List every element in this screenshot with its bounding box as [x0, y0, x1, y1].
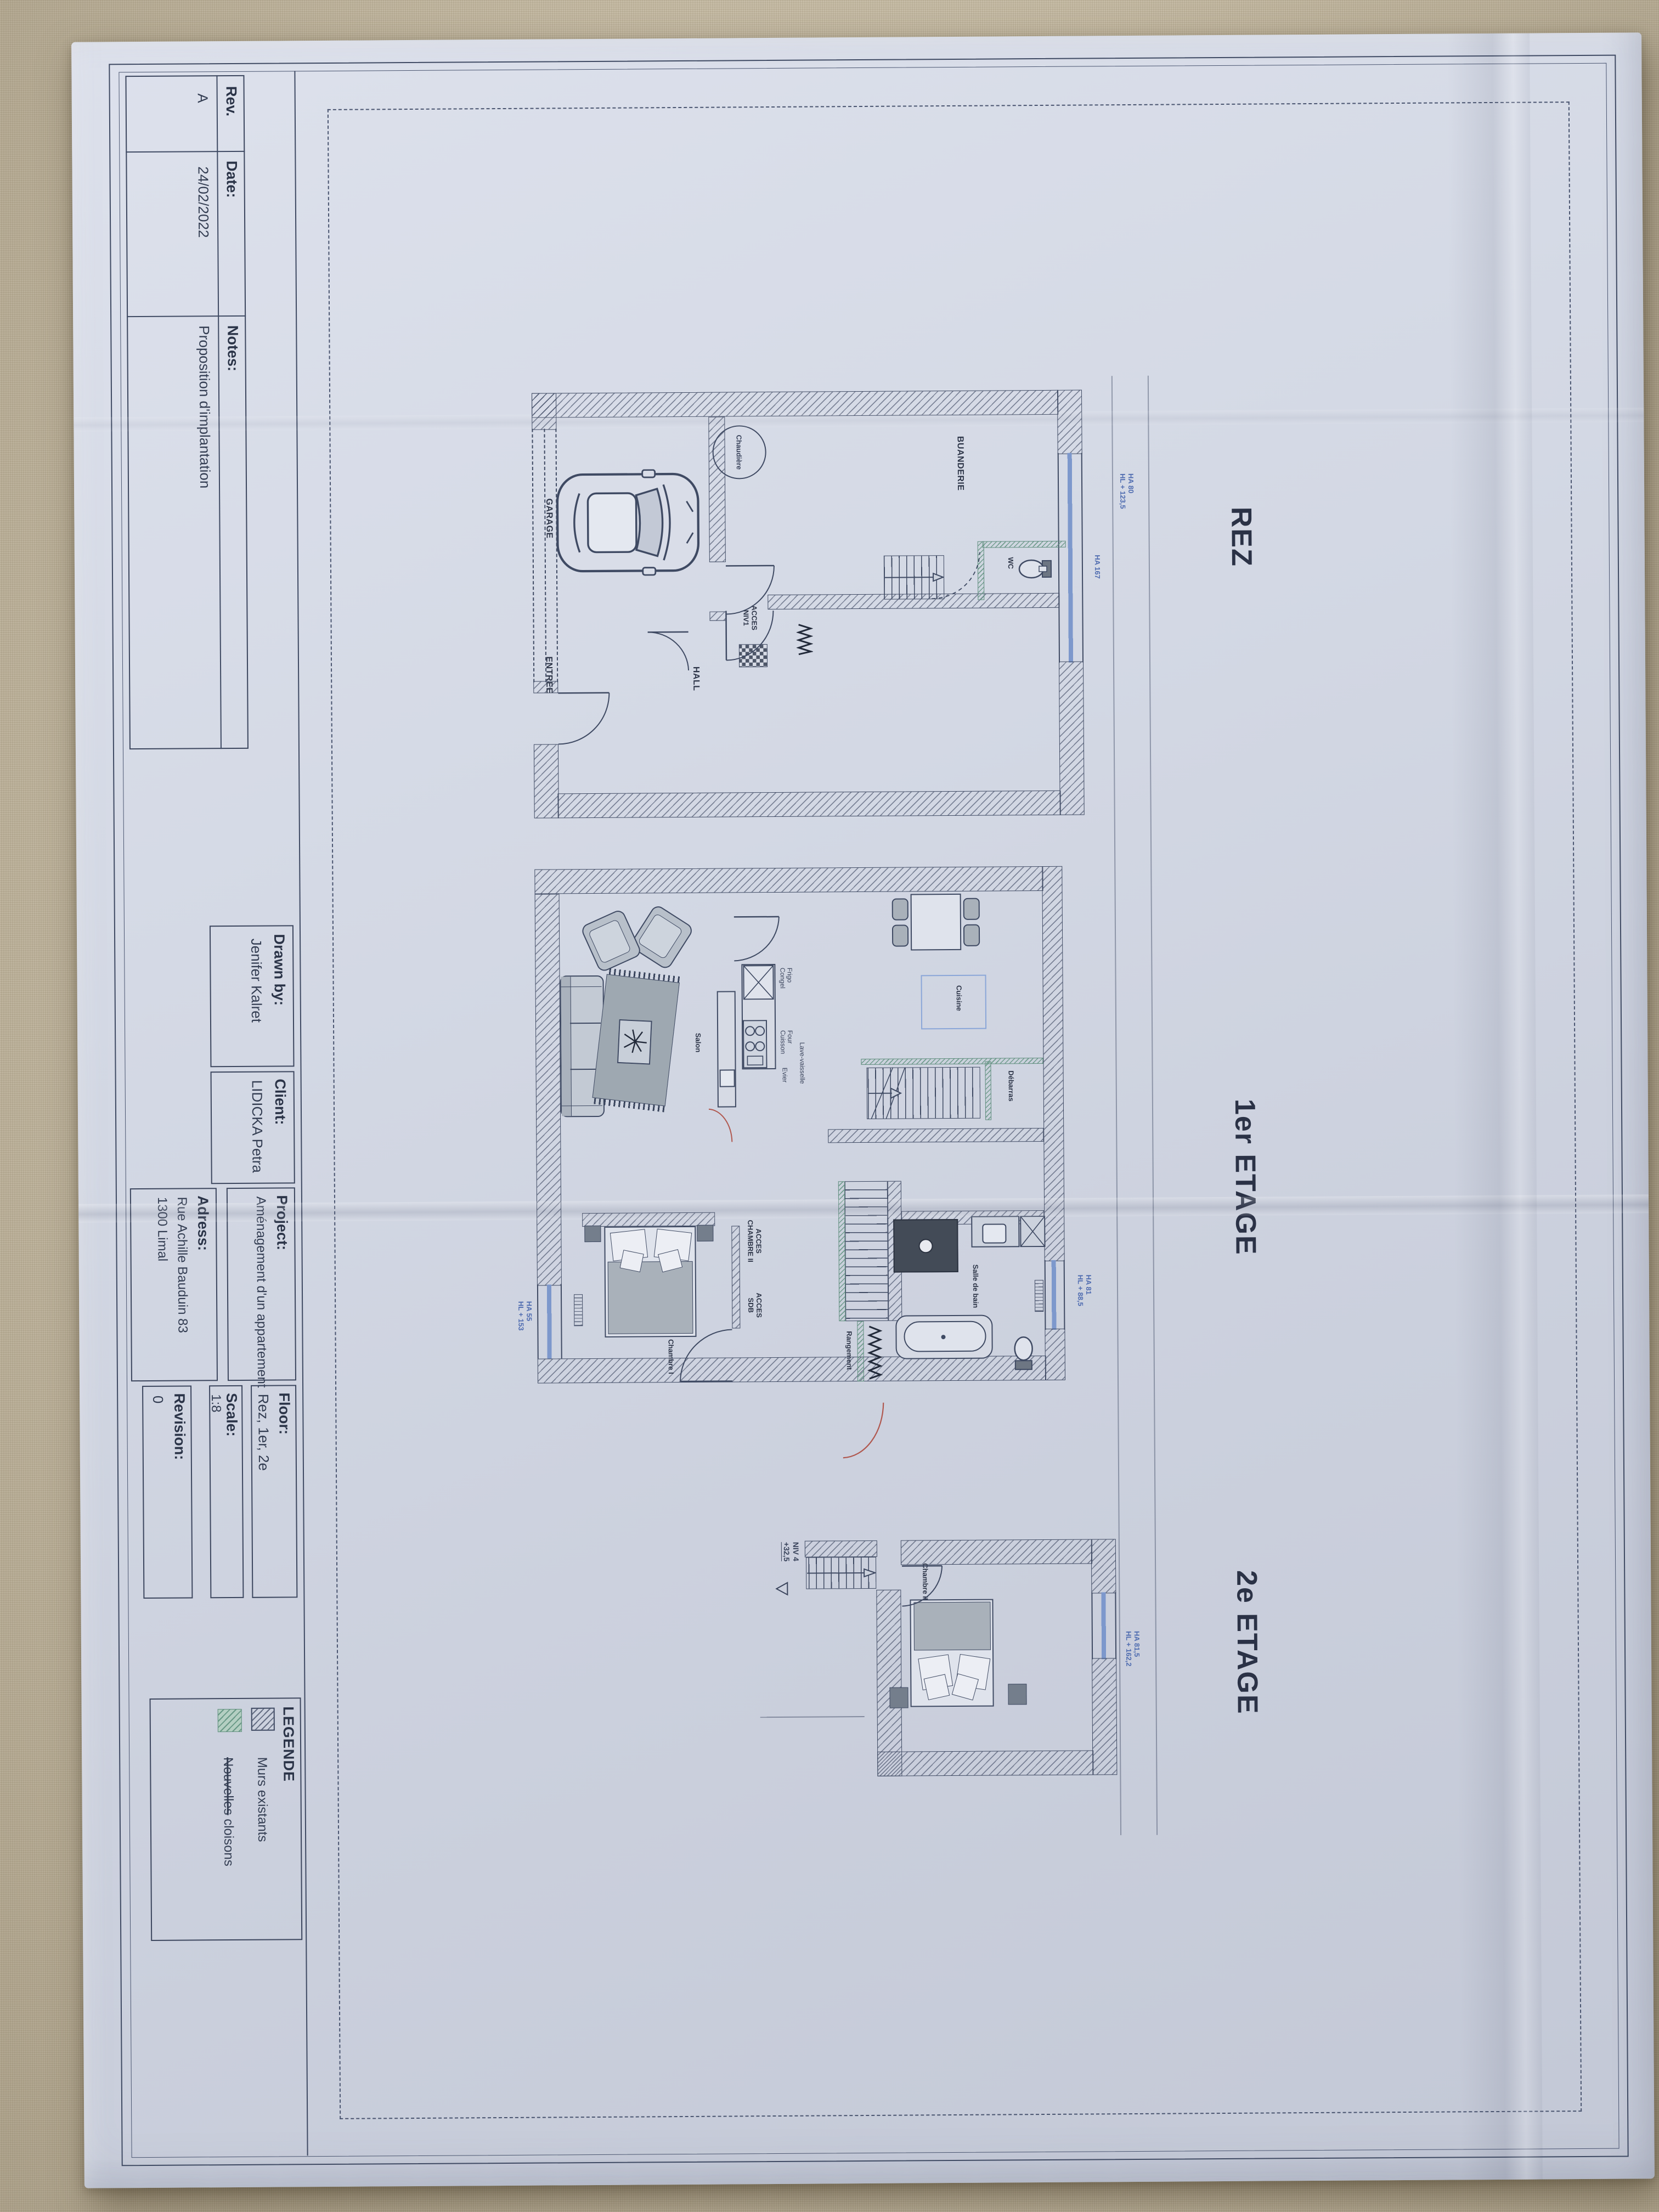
sofa-back [561, 977, 572, 1116]
blueprint-sheet: Rev. A Date: 24/02/2022 Notes: Propositi… [71, 32, 1655, 2188]
bed-blanket [913, 1602, 991, 1651]
window [537, 1284, 562, 1358]
wc-door-arc [930, 551, 981, 600]
kitchen-counter [717, 991, 736, 1107]
wall [534, 744, 559, 818]
floor-title-1er: 1er ETAGE [1228, 1099, 1262, 1256]
room-label-sdb: Salle de bain [972, 1265, 980, 1308]
dining-chair [892, 898, 909, 920]
scale-value: 1:8 [208, 1394, 223, 1413]
label-acces-niv1: ACCESNIV1 [742, 597, 758, 638]
coat-hooks-icon [867, 1325, 883, 1380]
wall [1092, 1658, 1117, 1775]
wall [532, 390, 1058, 418]
label-acces-chambre2: ACCESCHAMBRE II [746, 1214, 763, 1268]
room-label-wc: WC [1007, 549, 1015, 577]
stairs-arrow [806, 1567, 876, 1579]
garage-door-panel-line [544, 429, 546, 682]
rev-label: Rev. [223, 86, 240, 116]
wall [557, 791, 1060, 819]
armchair-seat [637, 913, 683, 960]
label-acces-sdb: ACCESSDB [747, 1286, 763, 1324]
legend-label-existing-walls: Murs existants [254, 1757, 270, 1842]
wall [1045, 1329, 1065, 1380]
sofa-armrest [562, 1105, 602, 1115]
room-label-garage: GARAGE [544, 498, 554, 538]
partition [838, 1181, 846, 1321]
wall [901, 1539, 1092, 1565]
drawing-content: Rev. A Date: 24/02/2022 Notes: Propositi… [71, 32, 1654, 2187]
radiator [574, 1294, 583, 1326]
client-label: Client: [272, 1079, 289, 1125]
label-four: FourCuisson [779, 1030, 793, 1054]
plan-2e: Chambre II [876, 1539, 1118, 1776]
floor-title-2e: 2e ETAGE [1230, 1570, 1264, 1715]
wc-partition [983, 541, 1066, 548]
car-icon [554, 469, 702, 577]
rez-ha167-annotation: HA 167 [1093, 555, 1102, 579]
stair-wall [805, 1541, 877, 1558]
legend-struck-word: Nouvelles [221, 1757, 236, 1815]
bed-blanket [608, 1261, 693, 1334]
shower-head [918, 1239, 933, 1253]
toilet-icon [1017, 557, 1052, 580]
notes-label: Notes: [224, 325, 241, 371]
toilet-icon [1012, 1335, 1035, 1370]
sdb-window-annotation: HA 81HL + 88,5 [1076, 1274, 1093, 1306]
armchair [629, 904, 695, 971]
adress-label: Adress: [194, 1195, 212, 1251]
door-arc [901, 1565, 943, 1607]
rug-fringe [607, 968, 680, 983]
stairs-to-2e [845, 1181, 889, 1321]
rez-window-annotation: HA 80HL + 123,5 [1119, 473, 1135, 509]
cushion [924, 1674, 950, 1700]
shower [893, 1219, 958, 1273]
wall [1057, 390, 1082, 454]
label-frigo: FrigoCongel [778, 968, 793, 989]
rev-value: A [194, 93, 211, 103]
stairs-winders [867, 1068, 906, 1119]
sofa-armrest [561, 978, 602, 987]
partition [857, 1321, 864, 1381]
chambre1-window-annotation: HA 55HL + 153 [517, 1301, 533, 1331]
label-evier: Evier [781, 1068, 788, 1082]
scale-label: Scale: [223, 1393, 240, 1437]
bathtub-drain [941, 1335, 946, 1339]
dining-table [911, 894, 962, 951]
room-label-rangement: Rangement [845, 1331, 853, 1370]
project-label: Project: [273, 1195, 291, 1250]
window [1045, 1260, 1065, 1330]
legend-word-cloisons: cloisons [221, 1815, 236, 1866]
drawn-by-label: Drawn by: [270, 934, 288, 1006]
legend-label-new-partitions: Nouvelles cloisons [220, 1757, 236, 1866]
legend-swatch-new-partitions [218, 1709, 242, 1732]
window [1091, 1592, 1116, 1659]
entry-door-arc [557, 692, 611, 746]
nightstand [1008, 1684, 1026, 1705]
basin [982, 1223, 1006, 1243]
floor-label: Floor: [275, 1392, 292, 1435]
date-value: 24/02/2022 [194, 166, 212, 238]
bathtub [895, 1315, 992, 1359]
door-arc [733, 916, 781, 962]
cooktop [743, 1020, 768, 1068]
interior-wall [582, 1212, 715, 1227]
revision-arc-red [708, 1108, 733, 1143]
coat-hooks-icon [797, 624, 813, 656]
legend-swatch-existing-walls [251, 1708, 275, 1731]
photo-of-floor-plan: { "title_block": { "rev_label": "Rev.", … [0, 0, 1659, 2212]
wall [534, 866, 1043, 894]
bed-chambre1 [604, 1226, 696, 1338]
armchair-seat [588, 919, 631, 964]
dining-chair [892, 924, 909, 946]
partition [861, 1058, 1043, 1065]
cuisine-zone-outline [921, 975, 986, 1030]
adress-value-line1: Rue Achille Bauduin 83 [174, 1197, 190, 1333]
rug [592, 974, 680, 1107]
partition [985, 1062, 991, 1120]
wall [876, 1590, 902, 1776]
revision-arc-red [842, 1402, 885, 1459]
level-value: +32,5 [781, 1542, 791, 1562]
label-lave-vaisselle: Lave-vaisselle [798, 1042, 805, 1084]
plan-rez: WC Chaudière [532, 390, 1085, 819]
floor-title-rez: REZ [1224, 507, 1258, 567]
wall [1059, 662, 1085, 815]
interior-wall [731, 1226, 740, 1328]
door-jamb [697, 1225, 713, 1242]
wall [1042, 866, 1064, 1261]
room-label-debarras: Débarras [1007, 1070, 1015, 1101]
fridge-freezer [743, 965, 774, 1000]
adress-value-line2: 1300 Limal [154, 1197, 170, 1262]
wall [532, 393, 556, 430]
sink [720, 1069, 735, 1087]
plant-icon [621, 1028, 649, 1056]
chambre2-window-annotation: HA 81,5HL + 162,2 [1125, 1631, 1141, 1667]
revision-value: 0 [149, 1396, 166, 1404]
room-label-entree: ENTREE [544, 656, 554, 693]
level-niv: NIV 4 [791, 1542, 800, 1562]
notes-value: Proposition d'implantation [195, 325, 213, 488]
armchair [580, 909, 642, 973]
room-label-buanderie: BUANDERIE [955, 436, 965, 491]
vanity-sink [971, 1216, 1019, 1248]
legend-title: LEGENDE [280, 1706, 297, 1782]
revision-label: Revision: [171, 1393, 188, 1460]
door-jamb [584, 1226, 601, 1242]
chaudiere-circle: Chaudière [712, 425, 766, 479]
room-label-hall: HALL [691, 667, 701, 691]
radiator [1035, 1280, 1043, 1312]
dining-chair [963, 898, 980, 920]
chaudiere-label: Chaudière [736, 435, 743, 470]
door-arc [647, 631, 690, 672]
dining-chair [963, 924, 980, 946]
level-triangle-marker [775, 1582, 788, 1596]
project-value: Aménagement d'un appartement [253, 1197, 269, 1388]
bed-chambre2 [910, 1599, 994, 1707]
room-label-salon: Salon [694, 1033, 702, 1052]
window [1058, 453, 1084, 663]
date-label: Date: [223, 161, 240, 198]
washing-machine [1020, 1216, 1045, 1247]
interior-wall [709, 612, 726, 621]
client-value: LIDICKA Petra [249, 1080, 266, 1173]
interior-wall [828, 1128, 1043, 1143]
nightstand [889, 1688, 908, 1708]
room-label-cuisine: Cuisine [955, 985, 963, 1011]
wall [1091, 1539, 1116, 1593]
wall [538, 1356, 1046, 1384]
level-annotation: NIV 4 +32,5 [781, 1542, 800, 1562]
wall [877, 1750, 1093, 1776]
cushion [620, 1250, 644, 1272]
floor-value: Rez, 1er, 2e [255, 1394, 272, 1471]
wall [535, 894, 562, 1285]
sofa-cushion-line [570, 1023, 601, 1024]
room-label-chambre1: Chambre I [667, 1339, 675, 1374]
drawn-by-value: Jenifer Kalret [247, 939, 265, 1023]
plan-1er: Débarras Rangement [534, 866, 1065, 1384]
